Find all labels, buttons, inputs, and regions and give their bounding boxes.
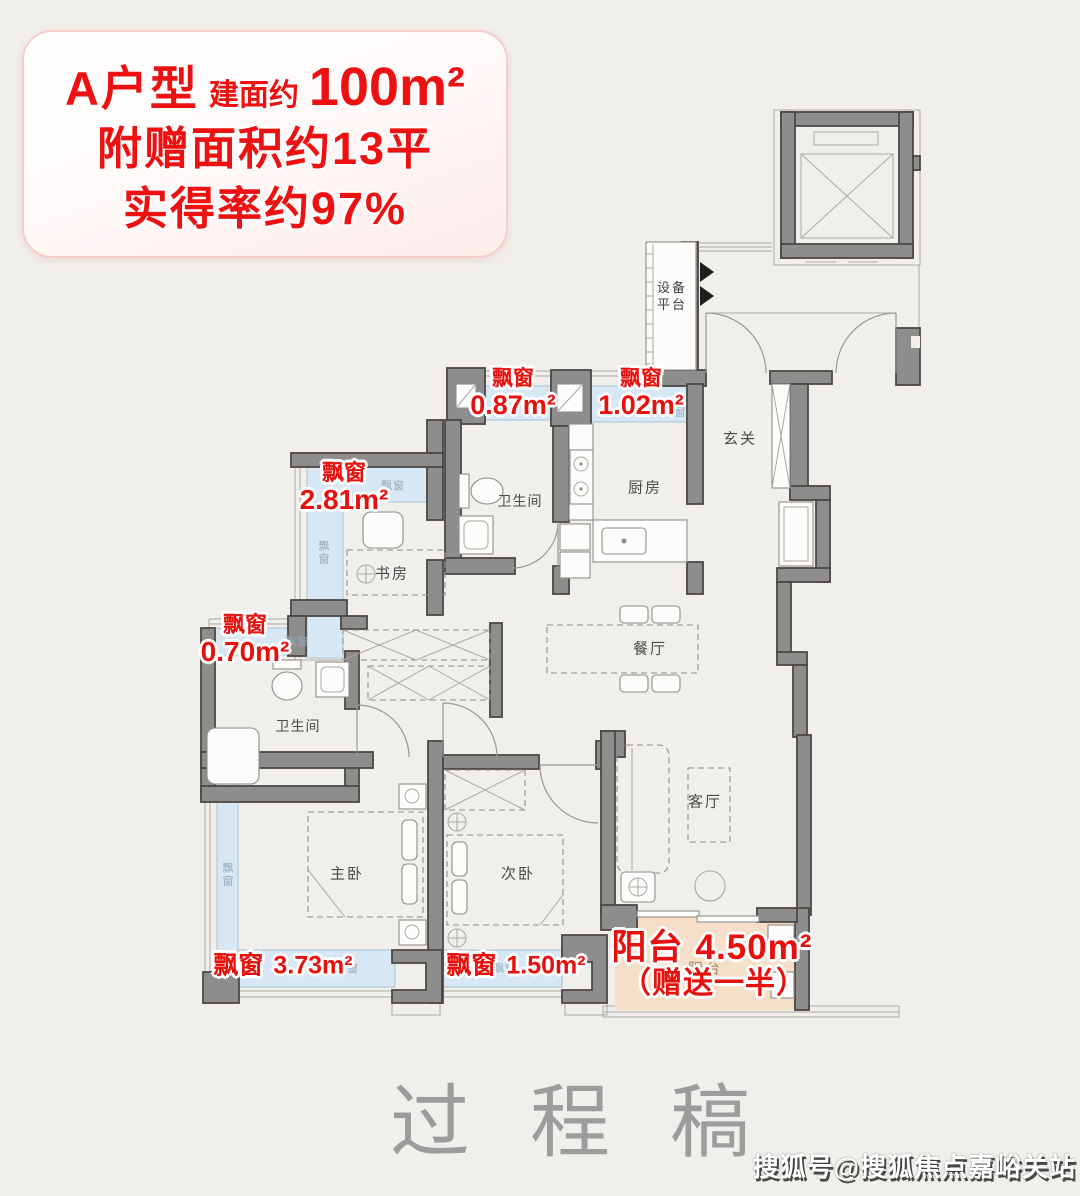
bay-window-label-087: 飘窗 0.87m² xyxy=(470,368,556,420)
bay-window-label-373: 飘窗3.73m² xyxy=(213,953,352,980)
draft-watermark: 过程稿 xyxy=(390,1058,810,1174)
room-label-bathroom-mid: 卫生间 xyxy=(276,716,321,736)
bay-window-tag: 飘窗 xyxy=(315,540,331,566)
room-label-master-bedroom: 主卧 xyxy=(330,863,364,884)
balcony-note: （赠送一半） xyxy=(621,968,807,1000)
balcony-label: 阳台4.50m² xyxy=(612,929,813,967)
header-title-row: A户型 建面约 100m² xyxy=(65,50,465,119)
vent-icon xyxy=(700,262,714,306)
bay-window-label-150: 飘窗1.50m² xyxy=(446,953,585,980)
rate-line: 实得率约97% xyxy=(123,179,407,238)
elevator xyxy=(801,132,893,262)
room-label-equipment-platform: 设备 平台 xyxy=(657,279,687,313)
plan-title: A户型 xyxy=(65,50,199,119)
area-prefix: 建面约 xyxy=(209,70,299,114)
room-label-kitchen: 厨房 xyxy=(628,477,662,498)
sohu-watermark: 搜狐号@搜狐焦点嘉峪关站 xyxy=(753,1147,1076,1184)
room-label-living: 客厅 xyxy=(688,791,722,812)
room-label-bathroom-top: 卫生间 xyxy=(498,491,543,511)
bonus-line: 附赠面积约13平 xyxy=(97,119,433,178)
bay-window-label-070: 飘窗 0.70m² xyxy=(201,613,290,667)
area-value: 100m² xyxy=(309,56,465,118)
room-label-dining: 餐厅 xyxy=(633,638,667,659)
floorplan-page: A户型 建面约 100m² 附赠面积约13平 实得率约97% 设备 平台 玄关 … xyxy=(0,0,1080,1196)
bay-window-label-102: 飘窗 1.02m² xyxy=(598,368,684,420)
room-label-second-bedroom: 次卧 xyxy=(501,863,535,884)
header-card: A户型 建面约 100m² 附赠面积约13平 实得率约97% xyxy=(22,30,508,258)
room-label-hallway: 玄关 xyxy=(723,428,757,449)
bay-window-tag: 飘窗 xyxy=(219,862,235,888)
room-label-study: 书房 xyxy=(375,563,409,584)
bay-window-label-281: 飘窗 2.81m² xyxy=(300,461,389,515)
